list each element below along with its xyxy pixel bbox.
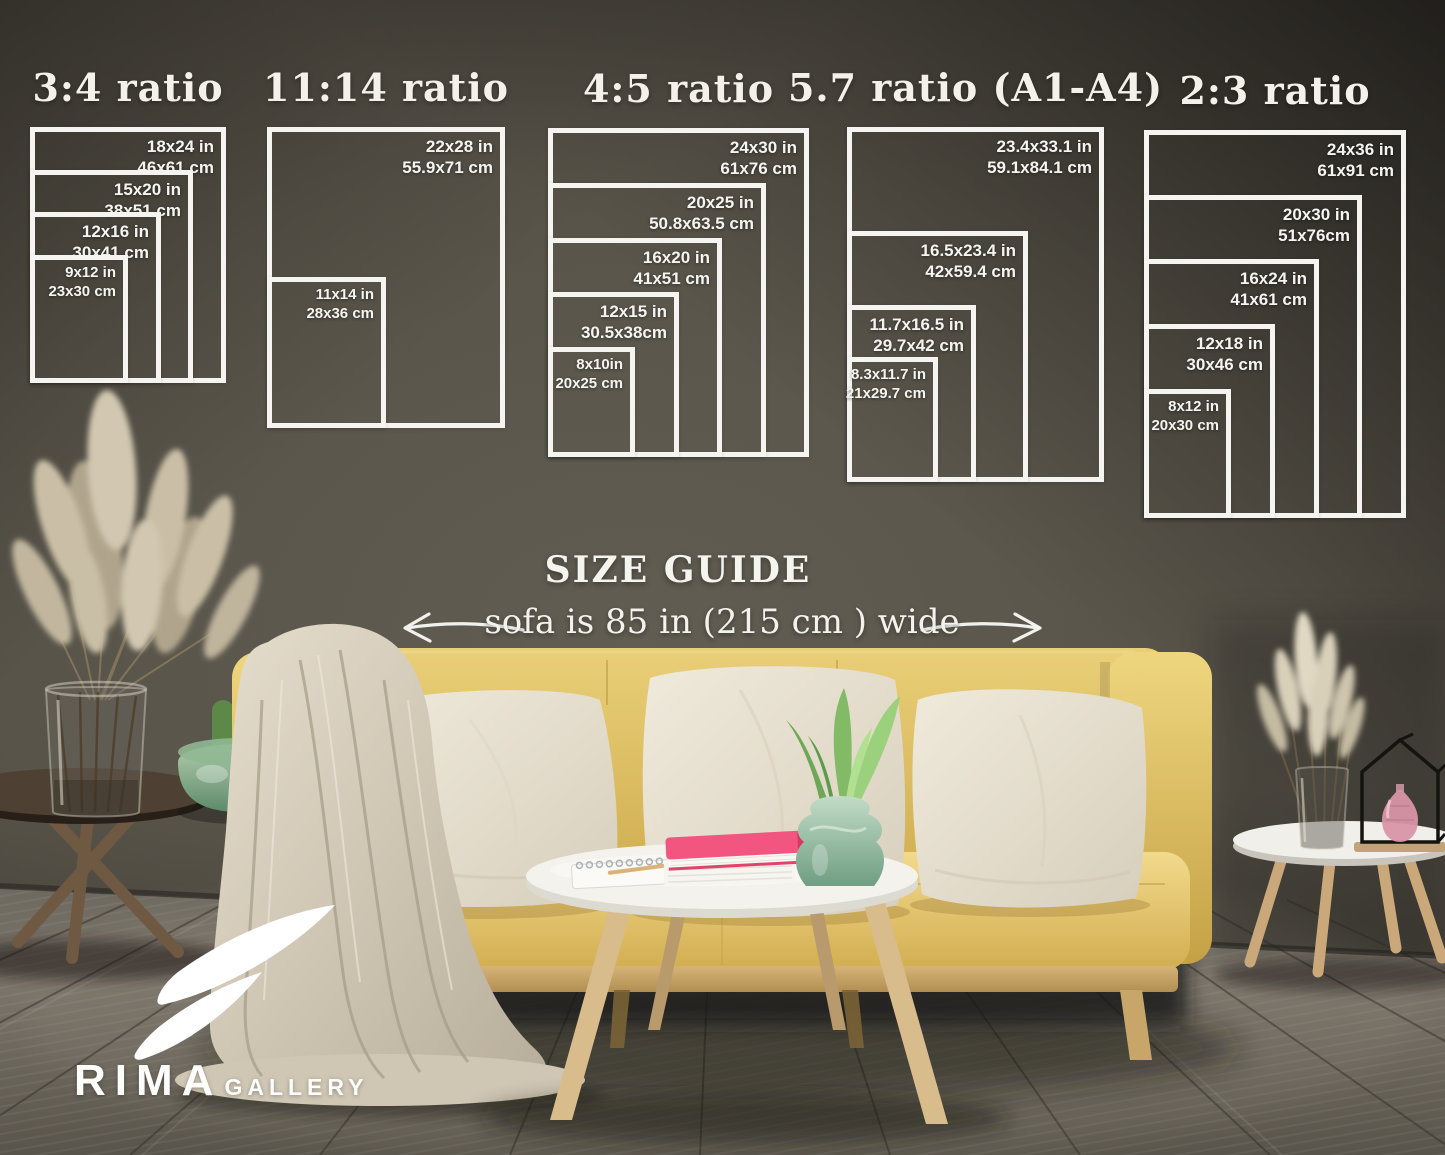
size-cm: 30.5x38cm xyxy=(581,322,667,343)
size-inches: 15x20 in xyxy=(104,179,181,200)
ratio-title: 4:5 ratio xyxy=(583,66,774,111)
size-cm: 20x25 cm xyxy=(555,375,623,394)
size-cm: 55.9x71 cm xyxy=(402,157,493,178)
size-inches: 12x18 in xyxy=(1186,333,1263,354)
size-cm: 20x30 cm xyxy=(1151,417,1219,436)
brand-wordmark: RIMA GALLERY xyxy=(74,1056,368,1106)
size-cm: 42x59.4 cm xyxy=(921,261,1016,282)
brand-name: RIMA xyxy=(74,1056,222,1106)
size-cm: 41x61 cm xyxy=(1230,289,1307,310)
size-cm: 29.7x42 cm xyxy=(869,335,964,356)
poster-size-guide: 3:4 ratio18x24 in46x61 cm15x20 in38x51 c… xyxy=(0,0,1445,1155)
size-inches: 18x24 in xyxy=(137,136,214,157)
size-label: 16.5x23.4 in42x59.4 cm xyxy=(921,240,1016,283)
size-label: 16x24 in41x61 cm xyxy=(1230,268,1307,311)
size-cm: 50.8x63.5 cm xyxy=(649,213,754,234)
size-cm: 61x76 cm xyxy=(720,158,797,179)
size-inches: 20x25 in xyxy=(649,192,754,213)
size-frame: 8x10in20x25 cm xyxy=(548,347,635,457)
size-cm: 21x29.7 cm xyxy=(846,385,926,404)
ratio-group: 2:3 ratio24x36 in61x91 cm20x30 in51x76cm… xyxy=(1144,130,1406,518)
size-frame: 8x12 in20x30 cm xyxy=(1144,389,1231,518)
size-inches: 8x10in xyxy=(555,356,623,375)
size-inches: 12x15 in xyxy=(581,301,667,322)
ratio-title: 11:14 ratio xyxy=(263,65,509,110)
size-label: 24x30 in61x76 cm xyxy=(720,137,797,180)
size-label: 12x18 in30x46 cm xyxy=(1186,333,1263,376)
size-label: 24x36 in61x91 cm xyxy=(1317,139,1394,182)
size-label: 12x15 in30.5x38cm xyxy=(581,301,667,344)
size-label: 9x12 in23x30 cm xyxy=(48,264,116,302)
size-inches: 8x12 in xyxy=(1151,398,1219,417)
size-label: 23.4x33.1 in59.1x84.1 cm xyxy=(987,136,1092,179)
size-inches: 8.3x11.7 in xyxy=(846,366,926,385)
size-cm: 41x51 cm xyxy=(633,268,710,289)
size-label: 8x12 in20x30 cm xyxy=(1151,398,1219,436)
ratio-title: 2:3 ratio xyxy=(1179,68,1370,113)
size-label: 16x20 in41x51 cm xyxy=(633,247,710,290)
size-inches: 24x36 in xyxy=(1317,139,1394,160)
size-cm: 30x46 cm xyxy=(1186,354,1263,375)
size-inches: 23.4x33.1 in xyxy=(987,136,1092,157)
size-inches: 24x30 in xyxy=(720,137,797,158)
size-label: 20x30 in51x76cm xyxy=(1278,204,1350,247)
size-inches: 16.5x23.4 in xyxy=(921,240,1016,261)
size-cm: 61x91 cm xyxy=(1317,160,1394,181)
size-cm: 51x76cm xyxy=(1278,225,1350,246)
ratio-title: 3:4 ratio xyxy=(32,65,223,110)
ratio-title: 5.7 ratio (A1-A4) xyxy=(788,65,1163,110)
ratio-group: 5.7 ratio (A1-A4)23.4x33.1 in59.1x84.1 c… xyxy=(847,127,1104,482)
sofa-width-note: sofa is 85 in (215 cm ) wide xyxy=(0,600,1445,660)
size-inches: 11x14 in xyxy=(306,286,374,305)
size-inches: 16x20 in xyxy=(633,247,710,268)
size-label: 8.3x11.7 in21x29.7 cm xyxy=(846,366,926,404)
brand-suffix: GALLERY xyxy=(224,1074,368,1101)
ratio-group: 4:5 ratio24x30 in61x76 cm20x25 in50.8x63… xyxy=(548,128,809,457)
size-frame: 9x12 in23x30 cm xyxy=(30,255,128,383)
size-label: 8x10in20x25 cm xyxy=(555,356,623,394)
size-inches: 11.7x16.5 in xyxy=(869,314,964,335)
brand-logo: RIMA GALLERY xyxy=(60,890,420,1110)
size-inches: 20x30 in xyxy=(1278,204,1350,225)
size-label: 20x25 in50.8x63.5 cm xyxy=(649,192,754,235)
size-inches: 16x24 in xyxy=(1230,268,1307,289)
size-inches: 9x12 in xyxy=(48,264,116,283)
size-guide-heading: SIZE GUIDE xyxy=(545,549,812,591)
ratio-group: 11:14 ratio22x28 in55.9x71 cm11x14 in28x… xyxy=(267,127,505,428)
sofa-width-text: sofa is 85 in (215 cm ) wide xyxy=(484,602,959,642)
size-cm: 23x30 cm xyxy=(48,283,116,302)
size-frame: 8.3x11.7 in21x29.7 cm xyxy=(847,357,938,482)
size-label: 11.7x16.5 in29.7x42 cm xyxy=(869,314,964,357)
size-label: 22x28 in55.9x71 cm xyxy=(402,136,493,179)
ratio-group: 3:4 ratio18x24 in46x61 cm15x20 in38x51 c… xyxy=(30,127,226,383)
size-inches: 12x16 in xyxy=(72,221,149,242)
size-cm: 59.1x84.1 cm xyxy=(987,157,1092,178)
size-inches: 22x28 in xyxy=(402,136,493,157)
size-cm: 28x36 cm xyxy=(306,305,374,324)
size-label: 11x14 in28x36 cm xyxy=(306,286,374,324)
size-frame: 11x14 in28x36 cm xyxy=(267,277,386,428)
